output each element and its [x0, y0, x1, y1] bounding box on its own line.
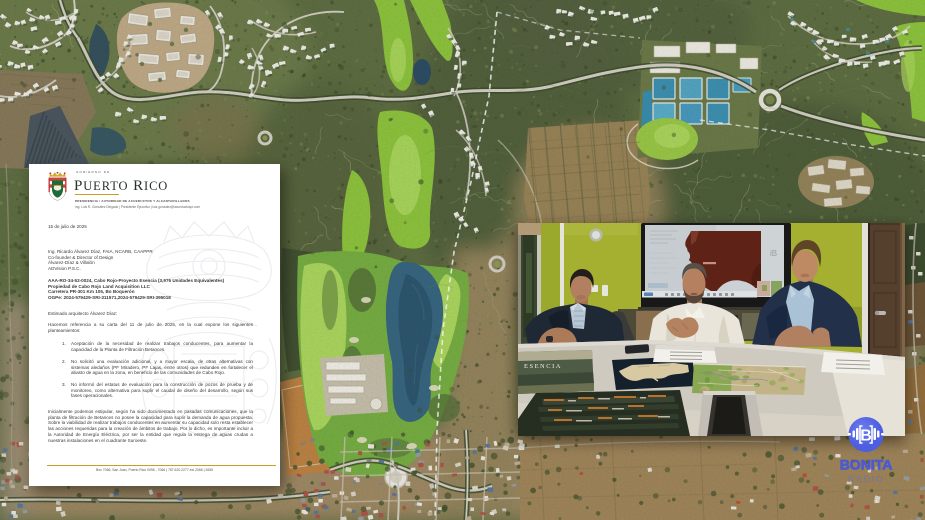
svg-text:RADIO: RADIO — [848, 474, 885, 484]
svg-text:iB: iB — [770, 249, 777, 258]
svg-text:BONITA: BONITA — [840, 457, 893, 473]
svg-text:ESENCIA: ESENCIA — [524, 363, 562, 370]
svg-text:B: B — [860, 428, 872, 445]
